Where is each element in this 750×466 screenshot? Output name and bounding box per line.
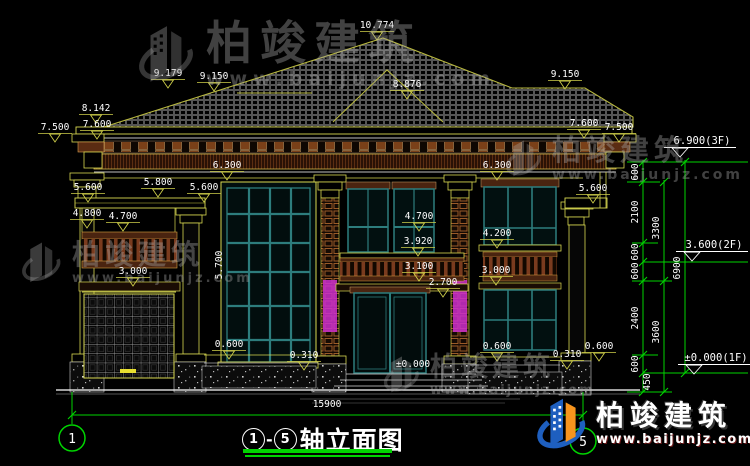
svg-text:7.600: 7.600	[570, 118, 599, 129]
roof	[104, 38, 633, 127]
dim-label: 9.150	[548, 69, 582, 89]
title-underline-thick	[243, 449, 392, 453]
dim-label: 3.000	[479, 265, 513, 285]
dim-label: 5.800	[141, 177, 175, 197]
dim-label: 7.500	[38, 122, 72, 142]
svg-text:5.600: 5.600	[190, 182, 219, 193]
svg-text:±0.000(1F): ±0.000(1F)	[684, 352, 747, 364]
chain-dim-label: 600	[630, 355, 641, 372]
cad-drawing-screen: 1 5 10.7749.1799.1508.8769.1508.1427.500…	[0, 0, 750, 466]
svg-text:9.150: 9.150	[200, 71, 229, 82]
garage-handle	[120, 369, 136, 373]
svg-text:3.920: 3.920	[404, 236, 433, 247]
dim-label: 0.600	[480, 341, 514, 361]
svg-text:4.700: 4.700	[405, 211, 434, 222]
svg-text:4.800: 4.800	[73, 208, 102, 219]
svg-text:600: 600	[630, 355, 641, 372]
svg-text:600: 600	[630, 243, 641, 260]
svg-text:5.600: 5.600	[74, 182, 103, 193]
svg-text:15900: 15900	[313, 399, 342, 410]
dim-label: 5.700	[214, 250, 225, 279]
svg-text:5.600: 5.600	[579, 183, 608, 194]
svg-text:3.100: 3.100	[405, 261, 434, 272]
chain-dim-label: 6900	[672, 256, 683, 279]
dim-label: 7.600	[567, 118, 601, 138]
svg-text:0.600: 0.600	[215, 339, 244, 350]
svg-text:0.310: 0.310	[553, 349, 582, 360]
dim-label: 10.774	[360, 20, 395, 40]
svg-text:8.142: 8.142	[82, 103, 111, 114]
brand-logo: 柏竣建筑 www.baijunjz.com	[536, 394, 750, 454]
axis-1-label: 1	[68, 432, 76, 447]
svg-text:3600: 3600	[651, 320, 662, 343]
chain-dim-label: 600	[630, 163, 641, 180]
svg-text:2100: 2100	[630, 200, 641, 223]
svg-text:3.000: 3.000	[119, 266, 148, 277]
svg-text:600: 600	[630, 262, 641, 279]
dim-label: ±0.000	[396, 359, 431, 370]
svg-text:600: 600	[630, 163, 641, 180]
svg-text:450: 450	[642, 373, 653, 390]
dim-label: 15900	[313, 399, 342, 410]
brand-logo-text: 柏竣建筑	[596, 402, 750, 430]
svg-text:7.600: 7.600	[83, 119, 112, 130]
svg-text:4.700: 4.700	[109, 211, 138, 222]
svg-text:6.900(3F): 6.900(3F)	[674, 135, 731, 147]
svg-text:6.300: 6.300	[213, 160, 242, 171]
svg-text:6.300: 6.300	[483, 160, 512, 171]
svg-text:3.000: 3.000	[482, 265, 511, 276]
svg-text:±0.000: ±0.000	[396, 359, 431, 370]
chain-dim-label: 3300	[651, 216, 662, 239]
chain-dim-label: 600	[630, 262, 641, 279]
svg-text:0.600: 0.600	[483, 341, 512, 352]
title-underline-thin	[245, 455, 390, 457]
svg-text:4.200: 4.200	[483, 228, 512, 239]
dim-label: 4.700	[106, 211, 140, 231]
svg-text:2.700: 2.700	[429, 277, 458, 288]
title-axis-start-circle: 1	[242, 428, 265, 451]
svg-text:7.500: 7.500	[605, 122, 634, 133]
chain-dim-label: 450	[642, 373, 653, 390]
svg-text:3.600(2F): 3.600(2F)	[686, 239, 743, 251]
chain-dim-label: 2100	[630, 200, 641, 223]
brand-logo-icon	[536, 394, 590, 454]
title-dash: -	[266, 430, 273, 449]
svg-text:3300: 3300	[651, 216, 662, 239]
svg-text:9.150: 9.150	[551, 69, 580, 80]
dim-label: 9.179	[151, 68, 185, 88]
level-marker: 6.900(3F)	[664, 135, 736, 157]
svg-text:8.876: 8.876	[393, 79, 422, 90]
level-marker: ±0.000(1F)	[678, 352, 750, 374]
title-axis-end-circle: 5	[274, 428, 297, 451]
svg-text:5.700: 5.700	[214, 250, 225, 279]
chain-dim-label: 2400	[630, 306, 641, 329]
garage-door	[82, 292, 176, 378]
svg-text:10.774: 10.774	[360, 20, 395, 31]
svg-text:6900: 6900	[672, 256, 683, 279]
svg-text:7.500: 7.500	[41, 122, 70, 133]
left-balcony-railing	[79, 232, 180, 291]
dim-label: 6.300	[210, 160, 244, 180]
svg-text:0.600: 0.600	[585, 341, 614, 352]
chain-dim-label: 600	[630, 243, 641, 260]
svg-text:5.800: 5.800	[144, 177, 173, 188]
dim-label: 6.300	[480, 160, 514, 180]
chain-dim-label: 3600	[651, 320, 662, 343]
svg-text:2400: 2400	[630, 306, 641, 329]
cornice	[72, 127, 636, 178]
svg-text:0.310: 0.310	[290, 350, 319, 361]
brand-logo-url: www.baijunjz.com	[596, 433, 750, 446]
svg-text:9.179: 9.179	[154, 68, 183, 79]
level-marker: 3.600(2F)	[676, 239, 748, 261]
